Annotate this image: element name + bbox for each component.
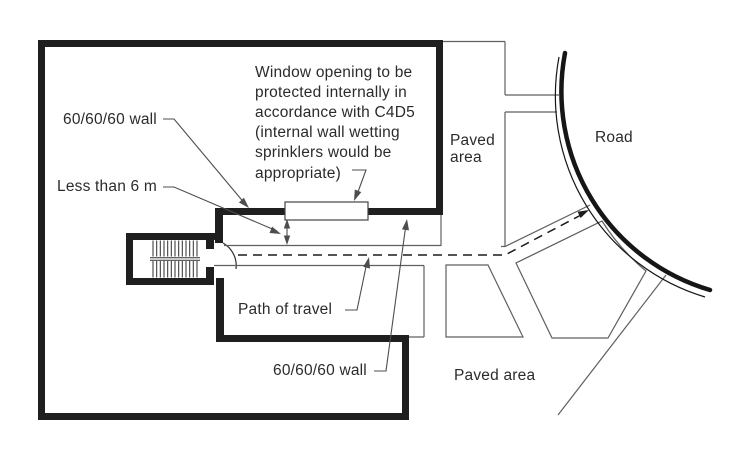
label-wall-bottom: 60/60/60 wall bbox=[273, 362, 367, 379]
label-paved-area-bottom: Paved area bbox=[454, 367, 535, 384]
path-arrowhead bbox=[578, 210, 589, 218]
staircase bbox=[150, 241, 236, 278]
window-note-line: (internal wall wetting bbox=[255, 124, 400, 141]
wing-wall-east bbox=[402, 335, 409, 420]
arrowhead-less-than-6m bbox=[270, 227, 282, 234]
leader-wall-top bbox=[163, 119, 246, 205]
label-less-than-6m: Less than 6 m bbox=[57, 178, 157, 195]
window-note-line: appropriate) bbox=[255, 165, 341, 182]
window-note-line: protected internally in bbox=[255, 84, 407, 101]
window-note-line: sprinklers would be bbox=[255, 144, 391, 161]
stair-wall-door-stub-lower bbox=[206, 267, 214, 285]
site-plan-svg: 60/60/60 wall Less than 6 m Window openi… bbox=[0, 0, 750, 460]
arrowhead-path-of-travel bbox=[363, 257, 370, 269]
arrowhead-wall-top bbox=[239, 198, 249, 208]
wall-left bbox=[38, 40, 45, 420]
distance-arrowhead-down bbox=[284, 236, 290, 246]
stair-mid-rails bbox=[150, 258, 200, 261]
stair-wall-bottom bbox=[126, 278, 214, 285]
distance-double-arrow bbox=[284, 219, 290, 245]
paved-area-top-line: area bbox=[450, 149, 482, 166]
wall-right-upper bbox=[436, 40, 443, 215]
stair-wall-top bbox=[126, 233, 223, 240]
paved-island-quad bbox=[446, 265, 523, 337]
leader-path-of-travel bbox=[345, 262, 367, 310]
wing-wall-north bbox=[216, 335, 409, 342]
label-paved-area-top: Paved area bbox=[450, 132, 495, 166]
stair-treads-upper bbox=[153, 241, 197, 257]
stair-wall-door-stub-upper bbox=[206, 240, 214, 249]
label-path-of-travel: Path of travel bbox=[238, 301, 332, 318]
arrowhead-wall-bottom bbox=[402, 219, 409, 230]
paved-area-top-line: Paved bbox=[450, 132, 495, 149]
window-note-line: accordance with C4D5 bbox=[255, 104, 415, 121]
window-note-line: Window opening to be bbox=[255, 64, 412, 81]
stair-wall-left bbox=[126, 233, 133, 285]
label-wall-top: 60/60/60 wall bbox=[63, 111, 157, 128]
site-plan-figure: 60/60/60 wall Less than 6 m Window openi… bbox=[0, 0, 750, 460]
label-window-note: Window opening to be protected internall… bbox=[255, 64, 415, 182]
stair-treads-lower bbox=[153, 261, 197, 278]
arrowhead-window-note bbox=[354, 190, 361, 202]
wall-top bbox=[38, 40, 443, 47]
label-road: Road bbox=[595, 129, 633, 146]
window-opening-rect bbox=[285, 202, 368, 220]
courtyard-east-edge bbox=[409, 266, 424, 338]
wall-bottom bbox=[38, 413, 409, 420]
wing-wall-west bbox=[216, 278, 224, 342]
